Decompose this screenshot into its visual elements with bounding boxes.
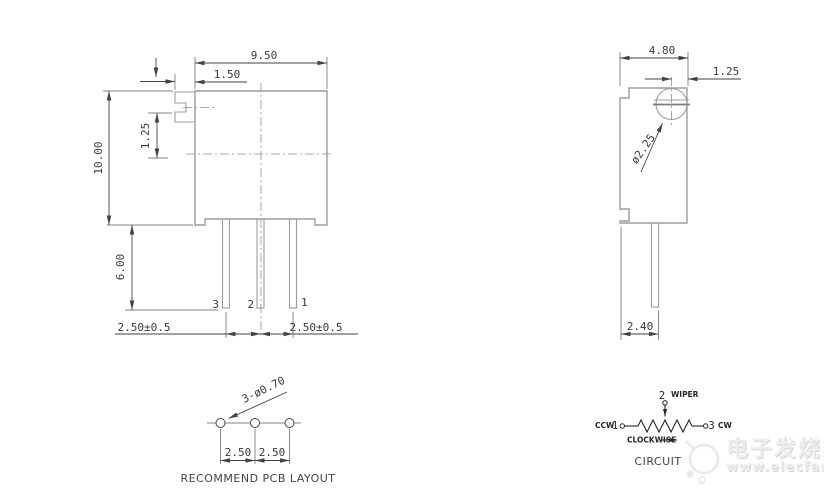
side-pin: [652, 223, 659, 307]
circuit-caption: CIRCUIT: [634, 455, 681, 468]
resistor-symbol: [638, 420, 692, 432]
pcb-pitch-a-dim: 2.50: [225, 446, 252, 459]
screw-diameter-dim: ø2.25: [628, 132, 658, 167]
circuit-cw-label: CW: [718, 421, 733, 430]
circuit-clockwise-label: CLOCKWISE: [627, 436, 676, 445]
pcb-hole-3: [285, 419, 294, 428]
front-pin-1: [290, 219, 297, 308]
elecfans-logo-icon: [682, 438, 722, 486]
front-slot-center-dim: 1.25: [139, 123, 152, 150]
circuit-terminal-3-label: 3: [708, 420, 714, 432]
front-pins: [223, 219, 297, 308]
front-pin-3: [223, 219, 230, 308]
front-pin-2: [257, 219, 264, 308]
front-slot-offset-dim: 1.50: [214, 68, 241, 81]
side-width-dim: 4.80: [649, 44, 676, 57]
front-pin2-label: 2: [247, 298, 254, 311]
watermark-brand: 电子发烧友: [726, 438, 824, 461]
side-screw-offset-dim: 1.25: [713, 65, 740, 78]
dimension-drawing: 9.50 1.50 10.00 1.25 6.00 2.50±0.5 2.50±…: [0, 0, 824, 500]
side-pin-offset-dim: 2.40: [627, 320, 654, 333]
pcb-hole-1: [216, 419, 225, 428]
front-centerlines: [183, 83, 333, 338]
front-height-dim: 10.00: [92, 141, 105, 174]
side-view: 4.80 1.25 ø2.25 2.40: [620, 44, 741, 340]
terminal-1-node: [620, 424, 624, 428]
front-width-dim: 9.50: [251, 49, 278, 62]
circuit-terminal-2-label: 2: [659, 390, 665, 402]
pcb-layout-caption: RECOMMEND PCB LAYOUT: [180, 472, 335, 485]
front-pitch-left-dim: 2.50±0.5: [118, 321, 171, 334]
pcb-holes-note: 3-ø0.70: [240, 374, 287, 406]
pcb-hole-2: [251, 419, 260, 428]
circuit-wiper-label: WIPER: [671, 390, 699, 399]
front-pin1-label: 1: [301, 296, 308, 309]
pcb-layout-view: 3-ø0.70 2.50 2.50 RECOMMEND PCB LAYOUT: [180, 374, 335, 485]
front-view: 9.50 1.50 10.00 1.25 6.00 2.50±0.5 2.50±…: [92, 49, 358, 338]
front-pin-length-dim: 6.00: [114, 254, 127, 281]
terminal-3-node: [704, 424, 708, 428]
watermark: 电子发烧友 www.elecfans.com: [682, 438, 824, 486]
drawing-page: 9.50 1.50 10.00 1.25 6.00 2.50±0.5 2.50±…: [0, 0, 824, 500]
pcb-pitch-b-dim: 2.50: [259, 446, 286, 459]
watermark-url: www.elecfans.com: [726, 461, 824, 475]
front-adjust-slot-tab: [175, 92, 195, 122]
front-dimension-lines: [103, 57, 358, 338]
front-body-outline: [175, 91, 327, 225]
front-pitch-right-dim: 2.50±0.5: [290, 321, 343, 334]
front-pin3-label: 3: [212, 298, 219, 311]
side-dimension-lines: [620, 52, 741, 340]
circuit-terminal-1-label: 1: [612, 420, 618, 432]
